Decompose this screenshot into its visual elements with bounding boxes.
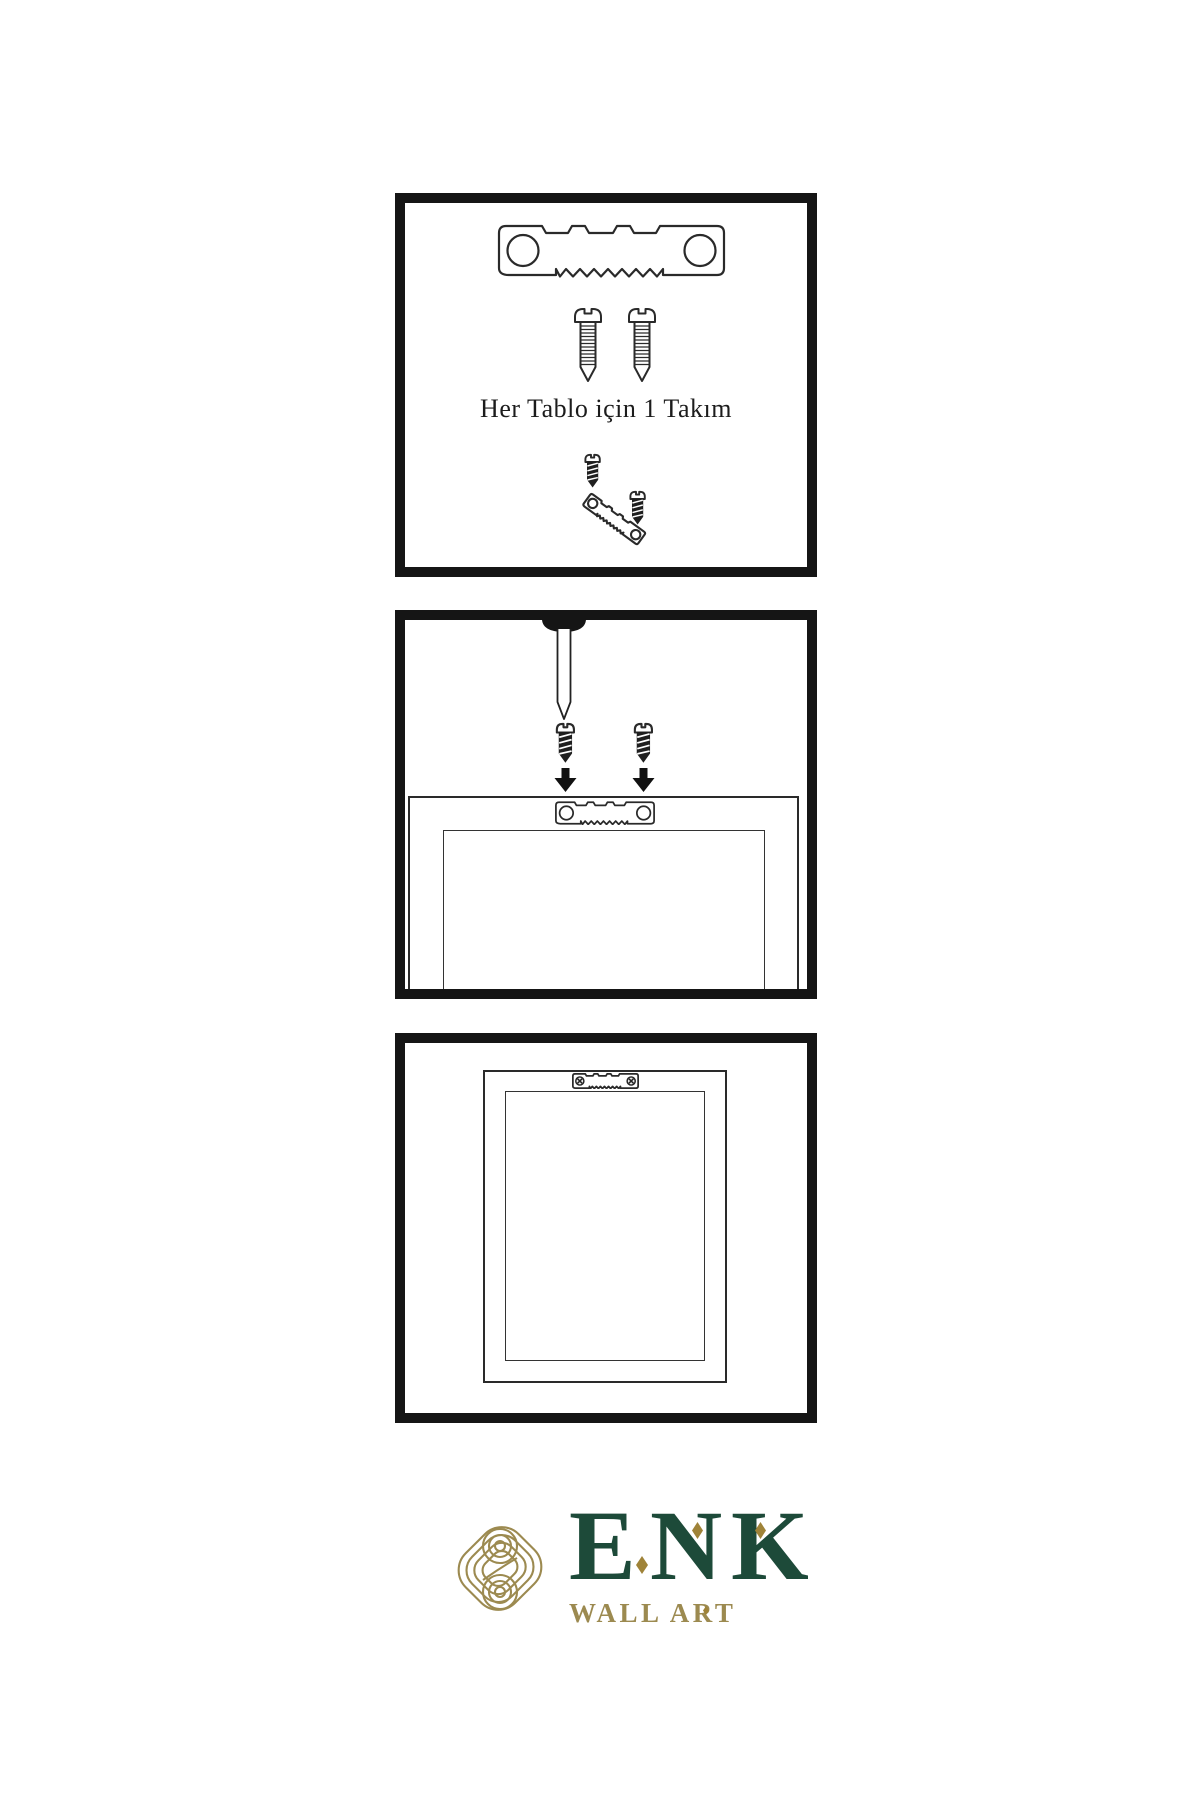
step-1-caption: Her Tablo için 1 Takım bbox=[405, 393, 807, 425]
diamond-accent bbox=[636, 1556, 648, 1574]
picture-frame-inner-edge bbox=[505, 1091, 705, 1361]
sawtooth-hanger-icon bbox=[554, 801, 656, 825]
frame-inner-edge bbox=[443, 830, 765, 989]
nail-in-wall-icon bbox=[535, 616, 593, 722]
panel-step-3 bbox=[395, 1033, 817, 1423]
brand-logo: E N K WALL ART bbox=[440, 1498, 830, 1648]
screws-with-arrows-icon bbox=[551, 722, 657, 794]
sawtooth-hanger-icon bbox=[496, 223, 727, 278]
brand-letter-k: K bbox=[731, 1496, 809, 1596]
brand-subtitle: WALL ART bbox=[569, 1599, 736, 1627]
arrow-down-icon bbox=[555, 768, 655, 792]
brand-letter-n: N bbox=[650, 1496, 722, 1596]
brand-letter-e: E bbox=[569, 1496, 636, 1596]
instruction-sheet: Her Tablo için 1 Takım bbox=[0, 0, 1200, 1800]
panel-step-1: Her Tablo için 1 Takım bbox=[395, 193, 817, 577]
interlocking-knot-icon bbox=[448, 1505, 552, 1632]
panel-step-2 bbox=[395, 610, 817, 999]
screws-pair-icon bbox=[570, 305, 662, 383]
screw-into-hanger-icon bbox=[575, 453, 659, 553]
installed-sawtooth-hanger-icon bbox=[572, 1073, 639, 1089]
